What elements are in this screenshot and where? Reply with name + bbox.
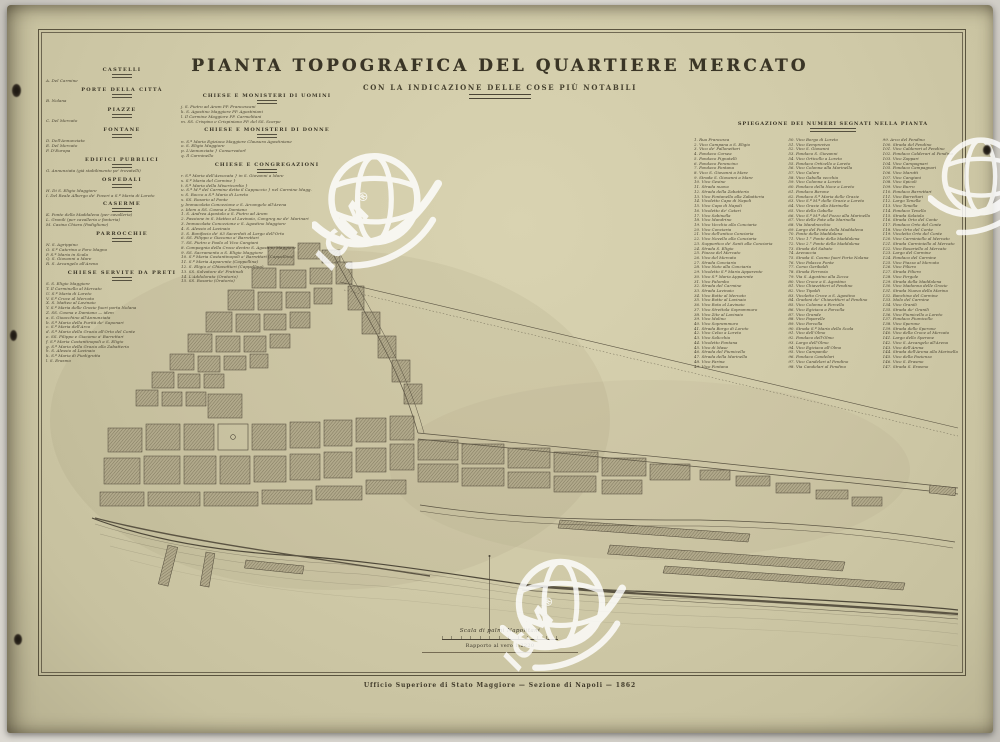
legend-section-title: PIAZZE — [46, 107, 198, 113]
church-section: CHIESE E CONGREGAZIONI r. S.ª Maria dell… — [181, 162, 353, 285]
legend-section: FONTANE D. Dell'AnnunziataE. Del Mercato… — [46, 127, 198, 154]
numbered-entry: 49. Vico Fontana — [694, 365, 783, 370]
church-section-title: CHIESE E CONGREGAZIONI — [181, 162, 353, 168]
scale-bar — [442, 639, 558, 640]
church-section-title: CHIESE E MONISTERI DI UOMINI — [181, 93, 353, 99]
legend-item: G. Annunziata (già stabilimento pe' trov… — [46, 169, 198, 174]
legend-section-title: PORTE DELLA CITTÀ — [46, 87, 198, 93]
legend-section: PORTE DELLA CITTÀ B. Nolana — [46, 87, 198, 104]
church-item: q. Il Carminello — [181, 154, 353, 159]
legend-items: H. Di S. Eligio MaggioreI. Del Reale Alb… — [46, 189, 198, 199]
church-items: r. S.ª Maria dell'Avvocata } in S. Giova… — [181, 174, 353, 284]
legend-section: PIAZZE C. Del Mercato — [46, 107, 198, 124]
legend-item: B. Nolana — [46, 99, 198, 104]
paper-hole — [12, 84, 21, 97]
legend-section: PARROCCHIE N. S. AgrippinoO. S.ª Caterin… — [46, 231, 198, 267]
legend-section: EDIFICI PUBBLICI G. Annunziata (già stab… — [46, 157, 198, 174]
legend-left: CASTELLI A. Del Carmine PORTE DELLA CITT… — [46, 64, 198, 364]
section-ornament — [257, 134, 277, 138]
legend-section-title: EDIFICI PUBBLICI — [46, 157, 198, 163]
legend-section-title: PARROCCHIE — [46, 231, 198, 237]
imprint: Ufficio Superiore di Stato Maggiore — Se… — [0, 682, 1000, 689]
legend-section: CASTELLI A. Del Carmine — [46, 67, 198, 84]
section-ornament — [112, 238, 132, 242]
section-ornament — [112, 74, 132, 78]
legend-section-title: FONTANE — [46, 127, 198, 133]
section-ornament — [810, 128, 856, 132]
explanation-column-1: 1. Rua Francesca2. Vico Campana a S. Eli… — [694, 138, 783, 369]
legend-item: R. S. Arcangelo all'Arena — [46, 262, 198, 267]
scale-ratio: Rapporto al vero 1:2220 — [420, 643, 580, 649]
explanation-header: SPIEGAZIONE DEI NUMERI SEGNATI NELLA PIA… — [694, 121, 972, 127]
legend-items: S. S. Eligio MaggioreT. Il Carminello al… — [46, 282, 198, 364]
legend-item: I. Del Reale Albergo de' Poveri a S.ª Ma… — [46, 194, 198, 199]
scale-block: Scala di palmi Napolitani Rapporto al ve… — [420, 628, 580, 653]
scale-underline — [422, 652, 578, 653]
legend-section-title: CASTELLI — [46, 67, 198, 73]
section-ornament — [112, 277, 132, 281]
legend-items: D. Dell'AnnunziataE. Del MercatoF. D'Eur… — [46, 139, 198, 153]
explanation-column-2: 50. Vico Borgo di Loreto51. Vico Semprev… — [788, 138, 877, 369]
legend-item: M. Casina Chiara (Padiglione) — [46, 223, 198, 228]
explanation-column-3: 99. Arco del Pendino100. Strada del Pend… — [883, 138, 972, 369]
legend-section: OSPEDALI H. Di S. Eligio MaggioreI. Del … — [46, 177, 198, 199]
legend-item: l. S. Erasmo — [46, 359, 198, 364]
numbered-entry: 147. Strada S. Erasmo — [883, 365, 972, 370]
legend-item: F. D'Europa — [46, 149, 198, 154]
section-ornament — [112, 164, 132, 168]
church-section: CHIESE E MONISTERI DI DONNE n. S.ª Maria… — [181, 127, 353, 158]
church-items: n. S.ª Maria Egiziaca Maggiore Clausura … — [181, 140, 353, 159]
church-items: j. S. Pietro ad Aram PP. Francescanik. S… — [181, 105, 353, 124]
legend-section-title: OSPEDALI — [46, 177, 198, 183]
section-ornament — [257, 100, 277, 104]
section-ornament — [112, 94, 132, 98]
title-ornament — [469, 94, 531, 99]
legend-section: CASERME K. Ponte della Maddalena (per ca… — [46, 201, 198, 228]
section-ornament — [112, 114, 132, 118]
section-ornament — [112, 134, 132, 138]
scale-label: Scala di palmi Napolitani — [420, 628, 580, 634]
church-section-title: CHIESE E MONISTERI DI DONNE — [181, 127, 353, 133]
legend-items: A. Del Carmine — [46, 79, 198, 84]
paper-hole — [10, 330, 17, 341]
explanation-block: SPIEGAZIONE DEI NUMERI SEGNATI NELLA PIA… — [694, 121, 972, 369]
paper-hole — [983, 145, 991, 155]
legend-items: K. Ponte della Maddalena (per cavalleria… — [46, 213, 198, 227]
legend-section: CHIESE SERVITE DA PRETI S. S. Eligio Mag… — [46, 270, 198, 364]
church-section: CHIESE E MONISTERI DI UOMINI j. S. Pietr… — [181, 93, 353, 124]
legend-item: C. Del Mercato — [46, 119, 198, 124]
legend-section-title: CASERME — [46, 201, 198, 207]
numbered-entry: 98. Via Candelari al Pendino — [788, 365, 877, 370]
legend-items: C. Del Mercato — [46, 119, 198, 124]
center-lists: CHIESE E MONISTERI DI UOMINI j. S. Pietr… — [181, 90, 353, 284]
section-ornament — [112, 184, 132, 188]
legend-item: A. Del Carmine — [46, 79, 198, 84]
legend-items: B. Nolana — [46, 99, 198, 104]
legend-items: G. Annunziata (già stabilimento pe' trov… — [46, 169, 198, 174]
paper-hole — [14, 634, 22, 645]
church-item: 15. SS. Rosario (Oratorio) — [181, 279, 353, 284]
explanation-columns: 1. Rua Francesca2. Vico Campana a S. Eli… — [694, 138, 972, 369]
legend-items: N. S. AgrippinoO. S.ª Caterina a Foro Ma… — [46, 243, 198, 267]
legend-section-title: CHIESE SERVITE DA PRETI — [46, 270, 198, 276]
church-item: m. SS. Crispino e Crispiniano PP. del SS… — [181, 120, 353, 125]
